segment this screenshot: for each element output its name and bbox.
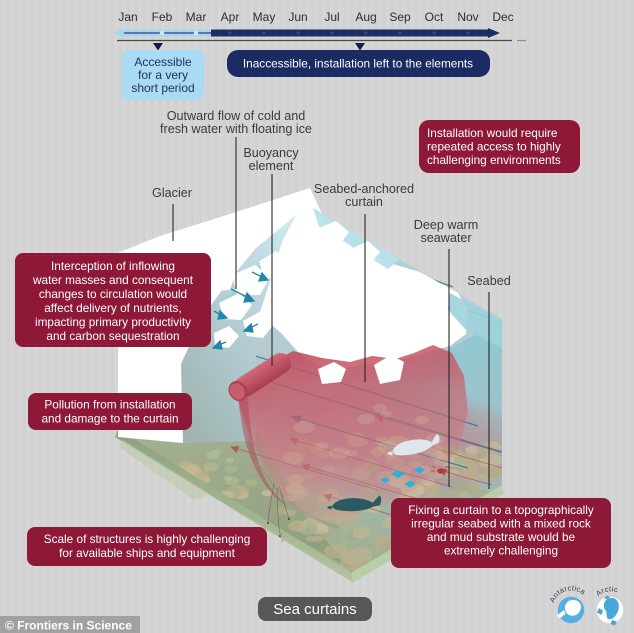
svg-text:Mar: Mar xyxy=(186,10,207,24)
svg-text:Inaccessible, installation lef: Inaccessible, installation left to the e… xyxy=(243,57,473,71)
svg-text:Feb: Feb xyxy=(152,10,173,24)
svg-text:challenging environments: challenging environments xyxy=(427,153,561,167)
svg-text:and damage to the curtain: and damage to the curtain xyxy=(41,412,178,426)
svg-text:Interception of inflowing: Interception of inflowing xyxy=(51,259,175,273)
svg-text:Installation would require: Installation would require xyxy=(427,126,558,140)
svg-text:impacting primary productivity: impacting primary productivity xyxy=(35,315,191,329)
svg-text:Oct: Oct xyxy=(425,10,444,24)
svg-text:Outward flow of cold and: Outward flow of cold and xyxy=(167,109,306,123)
svg-text:Seabed-anchored: Seabed-anchored xyxy=(314,182,414,196)
svg-text:short period: short period xyxy=(131,81,194,95)
svg-text:Sep: Sep xyxy=(389,10,411,24)
svg-text:Apr: Apr xyxy=(221,10,240,24)
svg-text:Nov: Nov xyxy=(457,10,478,24)
svg-text:curtain: curtain xyxy=(345,195,383,209)
svg-text:Pollution from installation: Pollution from installation xyxy=(44,398,175,412)
svg-text:Deep warm: Deep warm xyxy=(414,218,478,232)
svg-text:Accessible: Accessible xyxy=(134,55,192,69)
svg-text:Aug: Aug xyxy=(355,10,376,24)
svg-text:for a very: for a very xyxy=(138,68,188,82)
svg-text:Fixing a curtain to a topograp: Fixing a curtain to a topographically xyxy=(408,503,594,517)
svg-text:and carbon sequestration: and carbon sequestration xyxy=(46,329,179,343)
svg-text:Buoyancy: Buoyancy xyxy=(243,146,299,160)
svg-text:Dec: Dec xyxy=(492,10,513,24)
svg-text:extremely challenging: extremely challenging xyxy=(444,544,558,558)
svg-text:Jun: Jun xyxy=(288,10,307,24)
svg-text:changes to circulation would: changes to circulation would xyxy=(39,287,187,301)
svg-text:irregular seabed with a mixed: irregular seabed with a mixed rock xyxy=(411,517,591,531)
svg-text:seawater: seawater xyxy=(420,231,471,245)
svg-text:for available ships and equipm: for available ships and equipment xyxy=(59,546,235,560)
svg-text:May: May xyxy=(253,10,276,24)
svg-text:fresh water with floating ice: fresh water with floating ice xyxy=(160,122,312,136)
svg-text:water masses and consequent: water masses and consequent xyxy=(32,273,194,287)
svg-text:affect delivery of nutrients,: affect delivery of nutrients, xyxy=(44,301,182,315)
svg-text:element: element xyxy=(249,159,294,173)
svg-text:Seabed: Seabed xyxy=(467,274,510,288)
svg-text:© Frontiers in Science: © Frontiers in Science xyxy=(5,619,132,633)
svg-text:Sea curtains: Sea curtains xyxy=(273,601,356,618)
svg-text:and mud substrate would be: and mud substrate would be xyxy=(427,530,576,544)
svg-text:Jan: Jan xyxy=(118,10,137,24)
svg-text:Glacier: Glacier xyxy=(152,186,192,200)
svg-text:Jul: Jul xyxy=(324,10,339,24)
svg-text:Scale of structures is highly: Scale of structures is highly challengin… xyxy=(44,532,251,546)
svg-text:repeated access to highly: repeated access to highly xyxy=(427,140,561,154)
